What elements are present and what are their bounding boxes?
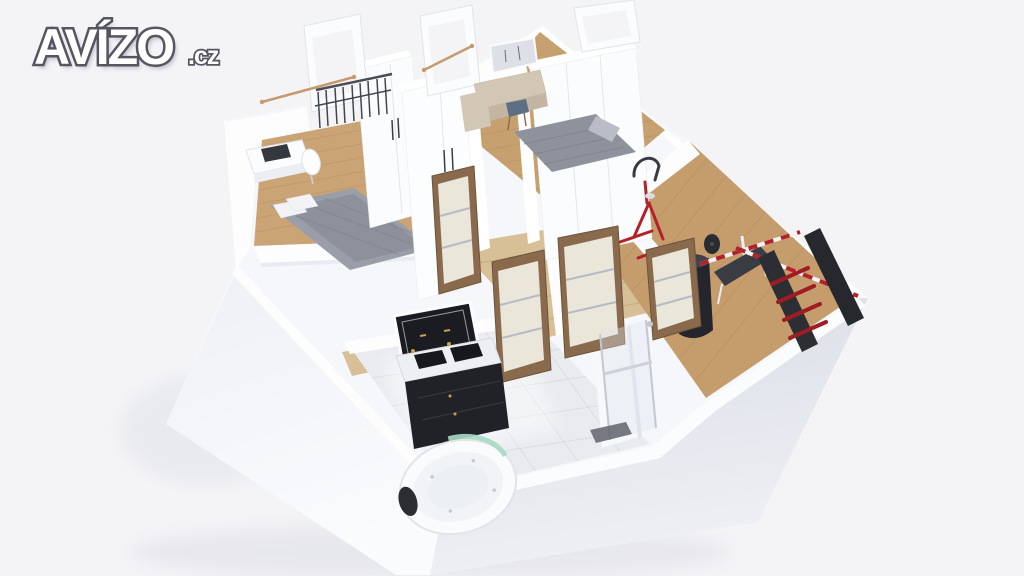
drawer-unit [460,90,491,132]
logo-suffix-text: .cz [188,42,219,70]
shower-head [647,321,653,327]
floor-plan-screenshot: AVÍZO AVÍZO .cz [0,0,1024,576]
logo-brand-text: AVÍZO [34,19,173,75]
open-window-frame [420,5,480,96]
open-window-frame [574,0,640,52]
faucet [411,349,415,353]
faucet [447,342,451,346]
interior-door [432,166,481,294]
avizo-watermark: AVÍZO AVÍZO .cz [34,19,219,79]
floor-plan-render: AVÍZO AVÍZO .cz [0,0,1024,576]
interior-door [646,238,701,340]
